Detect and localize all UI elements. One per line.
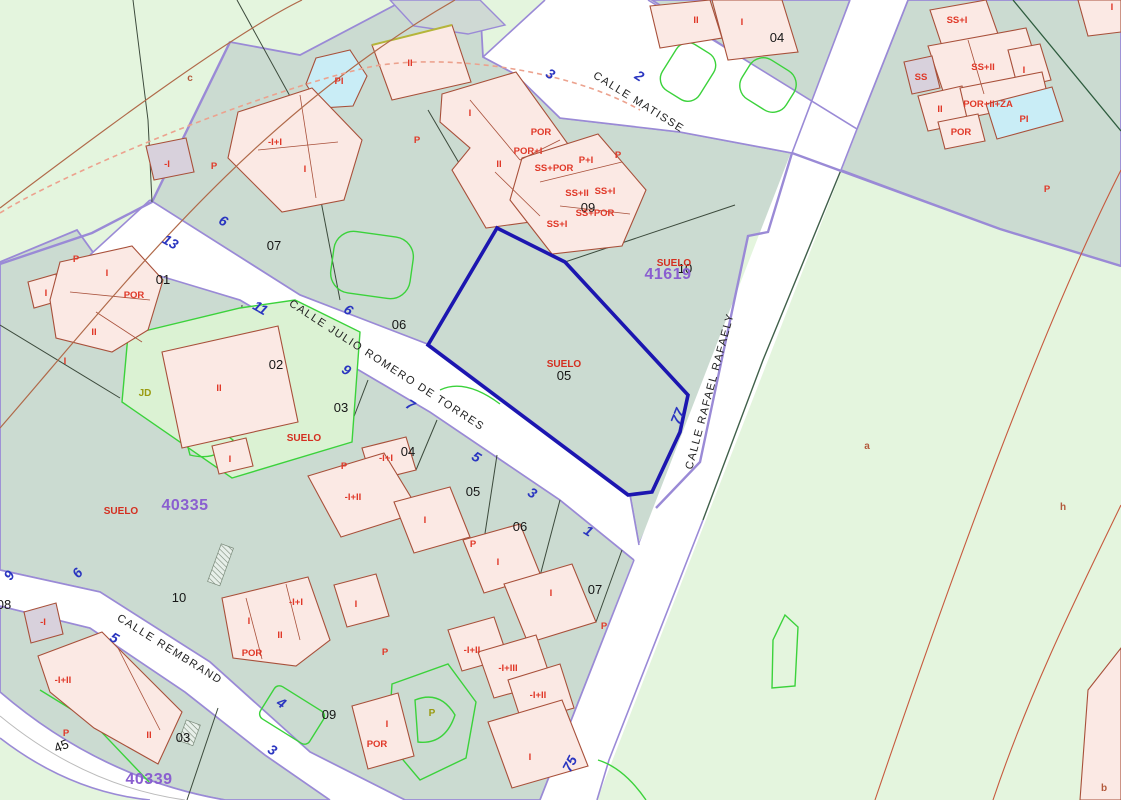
building-floors-label: I <box>64 356 67 367</box>
building-floors-label: POR <box>124 290 145 301</box>
building-floors-label: II <box>277 630 282 641</box>
building-floors-label: P <box>615 150 622 161</box>
building-floors-label: II <box>216 383 221 394</box>
building-floors-label: P+I <box>579 155 594 166</box>
building-floors-label: POR+II+ZA <box>963 99 1013 110</box>
building-floors-label: I <box>386 719 389 730</box>
building-floors-label: I <box>45 288 48 299</box>
parcel-number: 02 <box>269 357 283 372</box>
building-floors-label: I <box>469 108 472 119</box>
building-floors-label: SS+II <box>971 62 995 73</box>
building-floors-label: I <box>550 588 553 599</box>
land-use-label: JD <box>139 388 152 399</box>
building-floors-label: I <box>424 515 427 526</box>
parcel-number: 04 <box>770 30 784 45</box>
building-floors-label: I <box>304 164 307 175</box>
parcel-number: 07 <box>588 582 602 597</box>
building-floors-label: SS <box>915 72 928 83</box>
building-floors-label: SS+POR <box>535 163 574 174</box>
zone-letter: h <box>1060 502 1066 513</box>
block-number: 40339 <box>126 771 173 788</box>
land-use-label: SUELO <box>287 433 322 444</box>
parcel-number: 07 <box>267 238 281 253</box>
building-floors-label: POR <box>531 127 552 138</box>
building-floors-label: I <box>1111 2 1114 13</box>
building-floors-label: -I+II <box>55 675 72 686</box>
building-floors-label: P <box>211 161 218 172</box>
building-floors-label: -I <box>40 617 46 628</box>
zone-letter: a <box>864 441 870 452</box>
building-floors-label: II <box>91 327 96 338</box>
building-floors-label: P <box>470 539 477 550</box>
parcel-number: 05 <box>466 484 480 499</box>
building-floors-label: I <box>1023 65 1026 76</box>
building-floors-label: I <box>355 599 358 610</box>
land-use-label: SUELO <box>104 506 139 517</box>
building-floors-label: -I+II <box>345 492 362 503</box>
building-floors-label: SS+II <box>565 188 589 199</box>
cadastral-map[interactable]: CALLE MATISSECALLE JULIO ROMERO DE TORRE… <box>0 0 1121 800</box>
building-floors-label: P <box>63 728 70 739</box>
building-floors-label: SS+I <box>547 219 568 230</box>
building-floors-label: PI <box>1020 114 1029 125</box>
zone-letter: b <box>1101 783 1107 794</box>
parcel-number: 06 <box>513 519 527 534</box>
building <box>146 138 194 180</box>
parcel-number: 08 <box>0 597 11 612</box>
building-floors-label: -I+I <box>268 137 282 148</box>
parcel-number: 05 <box>557 368 571 383</box>
parcel-number: 01 <box>156 272 170 287</box>
building-floors-label: POR <box>951 127 972 138</box>
building-floors-label: SS+I <box>595 186 616 197</box>
building-floors-label: P <box>382 647 389 658</box>
building-floors-label: POR+I <box>514 146 543 157</box>
building-floors-label: II <box>407 58 412 69</box>
building-floors-label: POR <box>367 739 388 750</box>
building-floors-label: SS+I <box>947 15 968 26</box>
building-floors-label: -I <box>164 159 170 170</box>
zone-letter: c <box>187 73 193 84</box>
building-floors-label: I <box>497 557 500 568</box>
building-floors-label: POR <box>242 648 263 659</box>
building-floors-label: P <box>341 461 348 472</box>
block-number: 40335 <box>162 497 209 514</box>
building-floors-label: -I+I <box>379 453 393 464</box>
building-floors-label: I <box>229 454 232 465</box>
parcel-number: 09 <box>322 707 336 722</box>
building-floors-label: I <box>248 616 251 627</box>
building-floors-label: -I+II <box>464 645 481 656</box>
land-use-label: P <box>429 708 436 719</box>
building-floors-label: -I+III <box>498 663 517 674</box>
building-floors-label: -I+I <box>289 597 303 608</box>
land-use-label: SUELO <box>657 258 692 269</box>
building-floors-label: P <box>1044 184 1051 195</box>
building-floors-label: P <box>73 254 80 265</box>
building-floors-label: SS+POR <box>576 208 615 219</box>
parcel-number: 03 <box>334 400 348 415</box>
building-floors-label: II <box>937 104 942 115</box>
parcel-number: 03 <box>176 730 190 745</box>
building-floors-label: P <box>414 135 421 146</box>
building-floors-label: II <box>693 15 698 26</box>
map-canvas[interactable]: CALLE MATISSECALLE JULIO ROMERO DE TORRE… <box>0 0 1121 800</box>
building-floors-label: P <box>601 621 608 632</box>
building-floors-label: I <box>529 752 532 763</box>
building-floors-label: I <box>106 268 109 279</box>
building-floors-label: II <box>496 159 501 170</box>
parcel-number: 10 <box>172 590 186 605</box>
land-use-label: SUELO <box>547 359 582 370</box>
parcel-number: 04 <box>401 444 415 459</box>
building-floors-label: PI <box>335 76 344 87</box>
building-floors-label: I <box>741 17 744 28</box>
building-floors-label: II <box>146 730 151 741</box>
parcel-number: 06 <box>392 317 406 332</box>
building-floors-label: -I+II <box>530 690 547 701</box>
